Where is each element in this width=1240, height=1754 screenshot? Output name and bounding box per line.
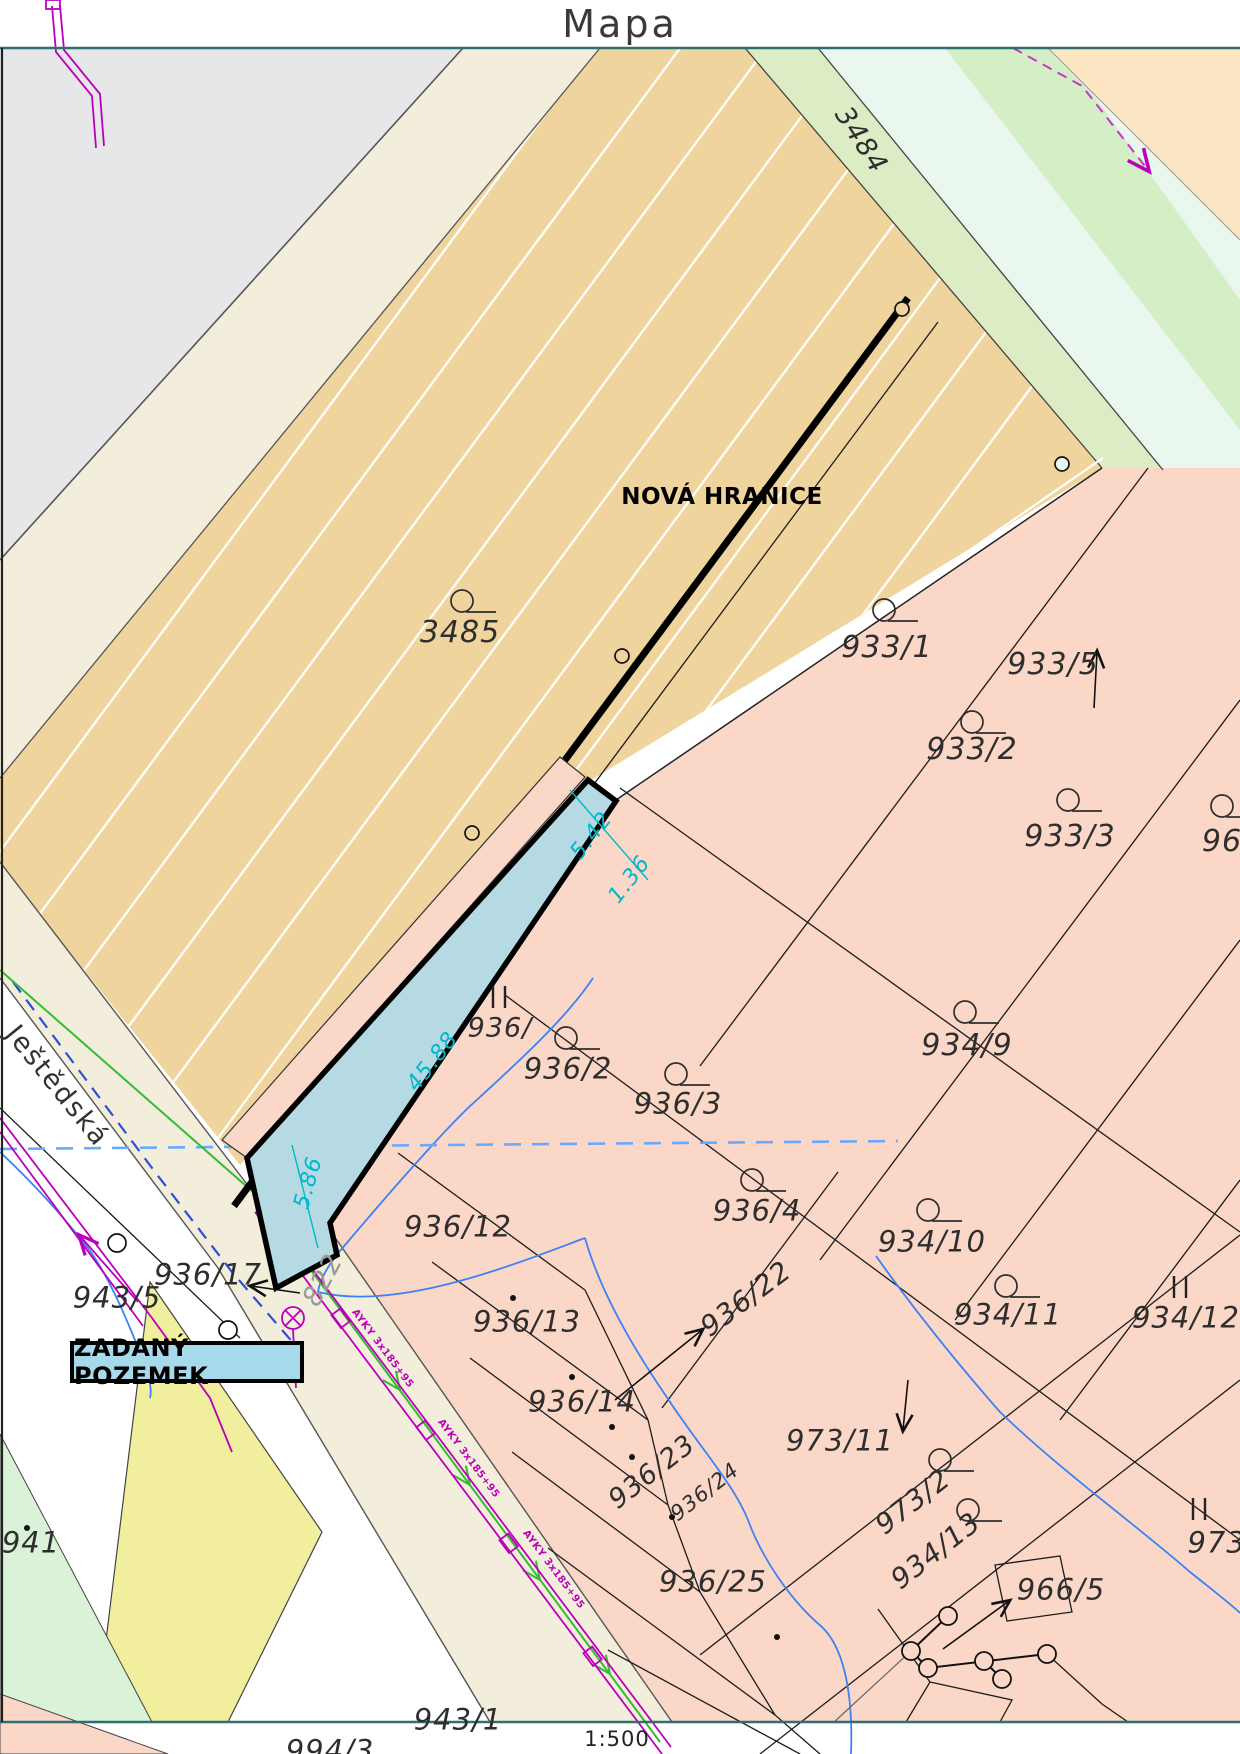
parcel-label: 934/11	[954, 1301, 1062, 1330]
parcel-label: 936/17	[154, 1261, 262, 1290]
target-parcel-label-box[interactable]: ZADANÝ POZEMEK	[70, 1341, 304, 1383]
parcel-label: 973/	[1187, 1529, 1240, 1558]
parcel-label: 936/	[468, 1015, 533, 1042]
cadastral-map-page: Mapa NOVÁ HRANICE ZADANÝ POZEMEK 1:500 3…	[0, 0, 1240, 1754]
parcel-label: 936/2	[524, 1055, 613, 1084]
map-title: Mapa	[562, 2, 677, 46]
parcel-label: 943/5	[73, 1284, 162, 1313]
parcel-label: 966/5	[1017, 1576, 1106, 1605]
parcel-label: 936/3	[634, 1090, 723, 1119]
parcel-label: 933/1	[841, 633, 932, 663]
parcel-label: 934/10	[878, 1228, 986, 1257]
parcel-label: 933/2	[926, 735, 1017, 765]
parcel-label: 994/3	[286, 1737, 375, 1754]
parcel-label: 936/13	[473, 1308, 581, 1337]
parcel-label: 936/4	[713, 1197, 802, 1226]
new-boundary-label: NOVÁ HRANICE	[621, 484, 822, 510]
parcel-label: 973/11	[786, 1427, 894, 1456]
parcel-label: 934/9	[921, 1031, 1012, 1061]
parcel-label: 936/25	[659, 1568, 767, 1597]
parcel-label: 933/5	[1007, 650, 1098, 680]
parcel-label: 933/3	[1024, 822, 1115, 852]
parcel-label: 3485	[420, 618, 500, 648]
parcel-label: 968	[1202, 827, 1240, 857]
parcel-label: 943/1	[414, 1706, 503, 1735]
parcel-label: 941	[2, 1529, 60, 1558]
parcel-label: 934/12	[1132, 1304, 1240, 1333]
parcel-label: 936/12	[404, 1213, 512, 1242]
scale-label: 1:500	[584, 1727, 650, 1751]
parcel-label: 936/14	[528, 1388, 636, 1417]
